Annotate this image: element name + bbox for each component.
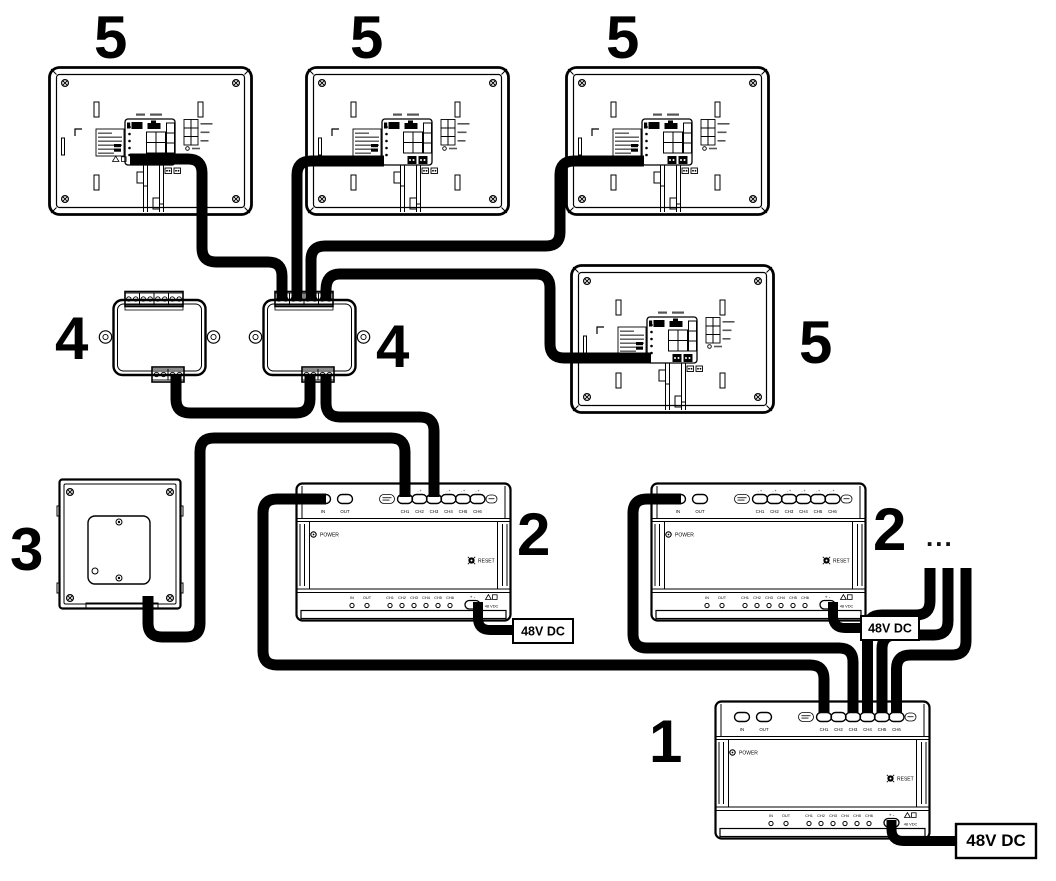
port-label-ch2: CH2 bbox=[834, 727, 843, 732]
power-label: POWER bbox=[320, 533, 339, 539]
psu-label-text: 48V DC bbox=[966, 831, 1026, 850]
terminal-pair-mark: - + bbox=[417, 489, 421, 493]
port-label-in: IN bbox=[740, 727, 744, 732]
cable-junction1-junction2 bbox=[176, 375, 310, 413]
led-label-ch5: CH5 bbox=[853, 813, 861, 818]
port-label-ch6: CH6 bbox=[473, 509, 482, 514]
psu-label-text: 48V DC bbox=[521, 625, 565, 639]
dc-rating-label: 48 VDC bbox=[904, 822, 918, 827]
led-label-ch2: CH2 bbox=[817, 813, 825, 818]
psu-label-text: 48V DC bbox=[868, 622, 912, 636]
monitor-graphic bbox=[50, 68, 252, 215]
led-label-ch1: CH1 bbox=[386, 595, 394, 600]
terminal-pair-mark: - + bbox=[830, 489, 834, 493]
dc-rating-label: 48 VDC bbox=[840, 604, 854, 609]
junction-box-graphic bbox=[99, 292, 219, 383]
callout-monitor-4: 5 bbox=[799, 309, 832, 376]
callout-junction-1: 4 bbox=[55, 305, 89, 372]
dc-terminal-label: + - bbox=[825, 595, 831, 600]
port-label-out: OUT bbox=[759, 727, 769, 732]
port-label-out: OUT bbox=[340, 509, 350, 514]
floor-distributor-1: INOUTCH1- +CH2- +CH3- +CH4- +CH5- +CH6- … bbox=[297, 484, 511, 621]
port-label-ch1: CH1 bbox=[401, 509, 410, 514]
led-label-out: OUT bbox=[363, 595, 372, 600]
junction-box-graphic bbox=[249, 292, 369, 383]
led-label-in: IN bbox=[705, 595, 709, 600]
led-label-ch4: CH4 bbox=[841, 813, 850, 818]
led-label-ch4: CH4 bbox=[777, 595, 786, 600]
monitor-graphic bbox=[307, 68, 509, 215]
psu-label-distributor-2: 48V DC bbox=[861, 616, 919, 640]
led-label-ch6: CH6 bbox=[865, 813, 873, 818]
more-distributors-indicator: ... bbox=[926, 522, 954, 552]
callout-monitor-2: 5 bbox=[350, 4, 383, 71]
door-station-inner bbox=[64, 484, 176, 604]
junction-box-2 bbox=[249, 292, 369, 383]
power-label: POWER bbox=[739, 751, 758, 757]
terminal-pair-mark: - + bbox=[801, 489, 805, 493]
junction-box-1 bbox=[99, 292, 219, 383]
port-label-ch4: CH4 bbox=[863, 727, 872, 732]
indoor-monitor-1 bbox=[50, 68, 252, 215]
callout-floor-distributor-2: 2 bbox=[873, 496, 906, 563]
led-label-ch3: CH3 bbox=[765, 595, 773, 600]
door-station-frame bbox=[60, 480, 181, 609]
monitor-graphic bbox=[567, 68, 769, 215]
reset-label: RESET bbox=[833, 559, 850, 565]
led-label-in: IN bbox=[769, 813, 773, 818]
port-label-ch2: CH2 bbox=[770, 509, 779, 514]
reset-label: RESET bbox=[478, 559, 495, 565]
port-label-ch3: CH3 bbox=[430, 509, 439, 514]
callout-floor-distributor-1: 2 bbox=[517, 501, 550, 568]
monitor-graphic bbox=[572, 266, 774, 413]
callout-main-distributor: 1 bbox=[649, 708, 682, 775]
indoor-monitor-4 bbox=[572, 266, 774, 413]
port-label-ch3: CH3 bbox=[849, 727, 858, 732]
callout-monitor-1: 5 bbox=[94, 4, 127, 71]
door-station-box bbox=[57, 480, 183, 609]
terminal-pair-mark: - + bbox=[475, 489, 479, 493]
dc-terminal-label: + - bbox=[889, 813, 895, 818]
terminal-pair-mark: - + bbox=[787, 489, 791, 493]
led-label-ch3: CH3 bbox=[410, 595, 418, 600]
led-label-ch1: CH1 bbox=[741, 595, 749, 600]
floor-distributor-2: INOUTCH1- +CH2- +CH3- +CH4- +CH5- +CH6- … bbox=[652, 484, 866, 621]
psu-label-main: 48V DC bbox=[956, 824, 1036, 858]
port-label-ch5: CH5 bbox=[878, 727, 887, 732]
port-label-out: OUT bbox=[695, 509, 705, 514]
port-label-ch5: CH5 bbox=[459, 509, 468, 514]
port-label-ch2: CH2 bbox=[415, 509, 424, 514]
terminal-pair-mark: - + bbox=[772, 489, 776, 493]
callout-door-station: 3 bbox=[10, 516, 43, 583]
port-label-ch4: CH4 bbox=[444, 509, 453, 514]
led-label-in: IN bbox=[350, 595, 354, 600]
reset-label: RESET bbox=[897, 777, 914, 783]
led-label-ch2: CH2 bbox=[753, 595, 761, 600]
door-station-panel bbox=[88, 516, 150, 584]
led-label-ch5: CH5 bbox=[789, 595, 797, 600]
terminal-pair-mark: - + bbox=[816, 489, 820, 493]
port-label-in: IN bbox=[676, 509, 680, 514]
led-label-ch1: CH1 bbox=[805, 813, 813, 818]
dc-rating-label: 48 VDC bbox=[485, 604, 499, 609]
led-label-ch2: CH2 bbox=[398, 595, 406, 600]
led-label-out: OUT bbox=[718, 595, 727, 600]
led-label-ch6: CH6 bbox=[446, 595, 454, 600]
power-label: POWER bbox=[675, 533, 694, 539]
main-distributor: INOUTCH1CH2CH3CH4CH5CH6POWERRESETINOUTCH… bbox=[716, 702, 930, 839]
port-label-ch1: CH1 bbox=[820, 727, 829, 732]
port-label-ch5: CH5 bbox=[814, 509, 823, 514]
led-label-ch3: CH3 bbox=[829, 813, 837, 818]
led-label-ch5: CH5 bbox=[434, 595, 442, 600]
led-label-ch6: CH6 bbox=[801, 595, 809, 600]
indoor-monitor-3 bbox=[567, 68, 769, 215]
terminal-pair-mark: - + bbox=[758, 489, 762, 493]
port-label-ch6: CH6 bbox=[892, 727, 901, 732]
led-label-ch4: CH4 bbox=[422, 595, 431, 600]
terminal-pair-mark: - + bbox=[446, 489, 450, 493]
indoor-monitor-2 bbox=[307, 68, 509, 215]
intercom-wiring-diagram: INOUTCH1- +CH2- +CH3- +CH4- +CH5- +CH6- … bbox=[0, 0, 1056, 881]
port-label-ch3: CH3 bbox=[785, 509, 794, 514]
port-label-ch6: CH6 bbox=[828, 509, 837, 514]
wiring-diagram-page: INOUTCH1- +CH2- +CH3- +CH4- +CH5- +CH6- … bbox=[0, 0, 1056, 881]
port-label-in: IN bbox=[321, 509, 325, 514]
psu-label-distributor-1: 48V DC bbox=[513, 619, 573, 643]
callout-monitor-3: 5 bbox=[606, 4, 639, 71]
cable-monitor1-junction bbox=[130, 159, 282, 299]
led-label-out: OUT bbox=[782, 813, 791, 818]
dc-terminal-label: + - bbox=[470, 595, 476, 600]
terminal-pair-mark: - + bbox=[461, 489, 465, 493]
cable-monitor4-junction bbox=[326, 274, 651, 358]
port-label-ch1: CH1 bbox=[756, 509, 765, 514]
cable-psu-main bbox=[892, 820, 963, 841]
callout-junction-2: 4 bbox=[376, 313, 410, 380]
port-label-ch4: CH4 bbox=[799, 509, 808, 514]
